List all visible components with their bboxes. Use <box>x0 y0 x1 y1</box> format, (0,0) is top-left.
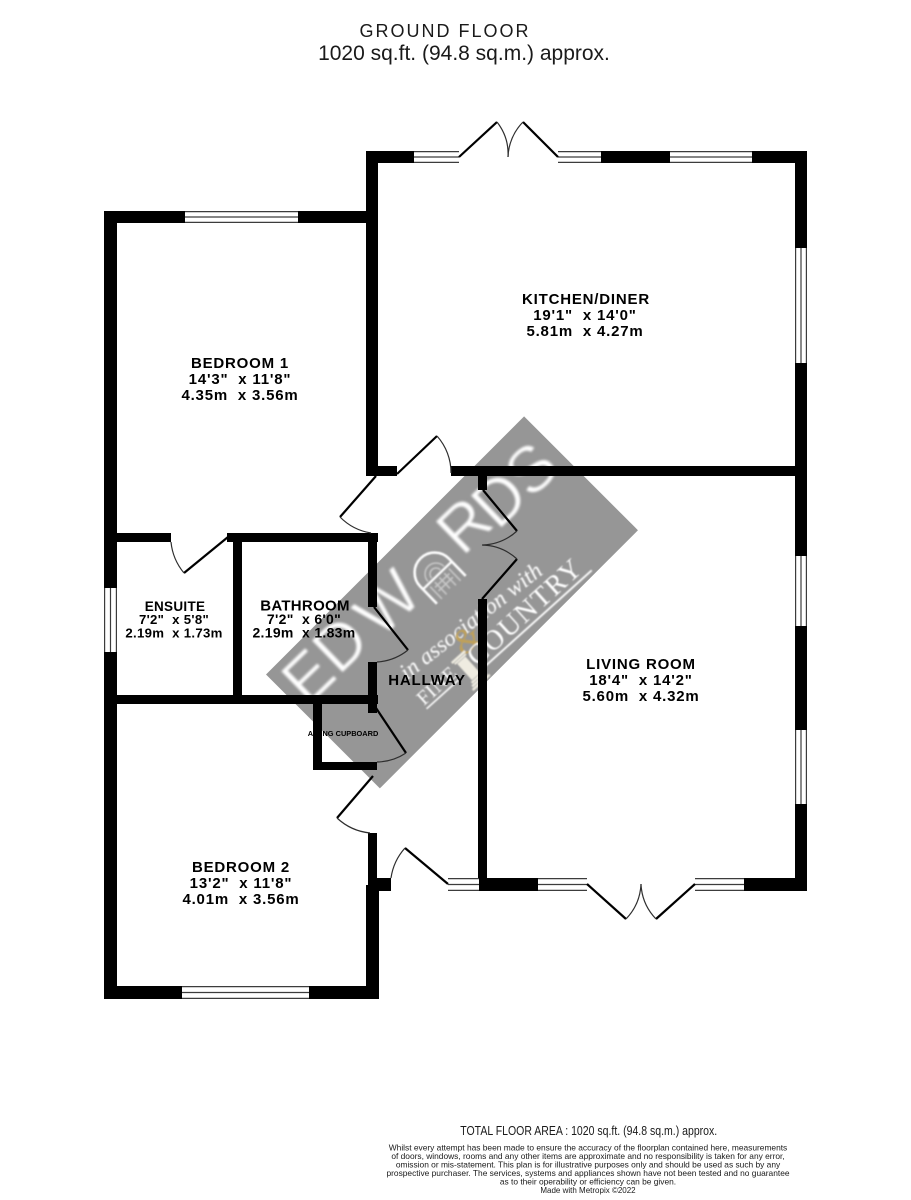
svg-text:2.19m x 1.73m: 2.19m x 1.73m <box>125 626 222 641</box>
svg-text:as to their operability or eff: as to their operability or efficiency ca… <box>500 1177 676 1187</box>
svg-text:LIVING ROOM: LIVING ROOM <box>586 656 696 673</box>
svg-text:5.60m x 4.32m: 5.60m x 4.32m <box>582 688 699 705</box>
svg-text:GROUND FLOOR: GROUND FLOOR <box>359 21 530 41</box>
svg-text:1020 sq.ft. (94.8 sq.m.) appro: 1020 sq.ft. (94.8 sq.m.) approx. <box>318 42 610 65</box>
svg-text:BEDROOM 2: BEDROOM 2 <box>192 859 290 876</box>
svg-text:KITCHEN/DINER: KITCHEN/DINER <box>522 291 650 308</box>
svg-text:2.19m x 1.83m: 2.19m x 1.83m <box>252 625 355 641</box>
svg-text:HALLWAY: HALLWAY <box>388 672 466 689</box>
svg-text:TOTAL FLOOR AREA : 1020 sq.ft.: TOTAL FLOOR AREA : 1020 sq.ft. (94.8 sq.… <box>460 1123 717 1139</box>
svg-text:19'1" x 14'0": 19'1" x 14'0" <box>533 307 636 324</box>
svg-text:BEDROOM 1: BEDROOM 1 <box>191 355 289 372</box>
svg-text:5.81m x 4.27m: 5.81m x 4.27m <box>526 323 643 340</box>
svg-text:Made with Metropix ©2022: Made with Metropix ©2022 <box>540 1186 636 1195</box>
svg-text:14'3" x 11'8": 14'3" x 11'8" <box>189 371 292 388</box>
svg-text:4.35m x 3.56m: 4.35m x 3.56m <box>181 387 298 404</box>
svg-text:13'2" x 11'8": 13'2" x 11'8" <box>190 875 293 892</box>
svg-text:18'4" x 14'2": 18'4" x 14'2" <box>589 672 692 689</box>
svg-text:AIRING CUPBOARD: AIRING CUPBOARD <box>308 729 379 738</box>
svg-text:4.01m x 3.56m: 4.01m x 3.56m <box>182 891 299 908</box>
